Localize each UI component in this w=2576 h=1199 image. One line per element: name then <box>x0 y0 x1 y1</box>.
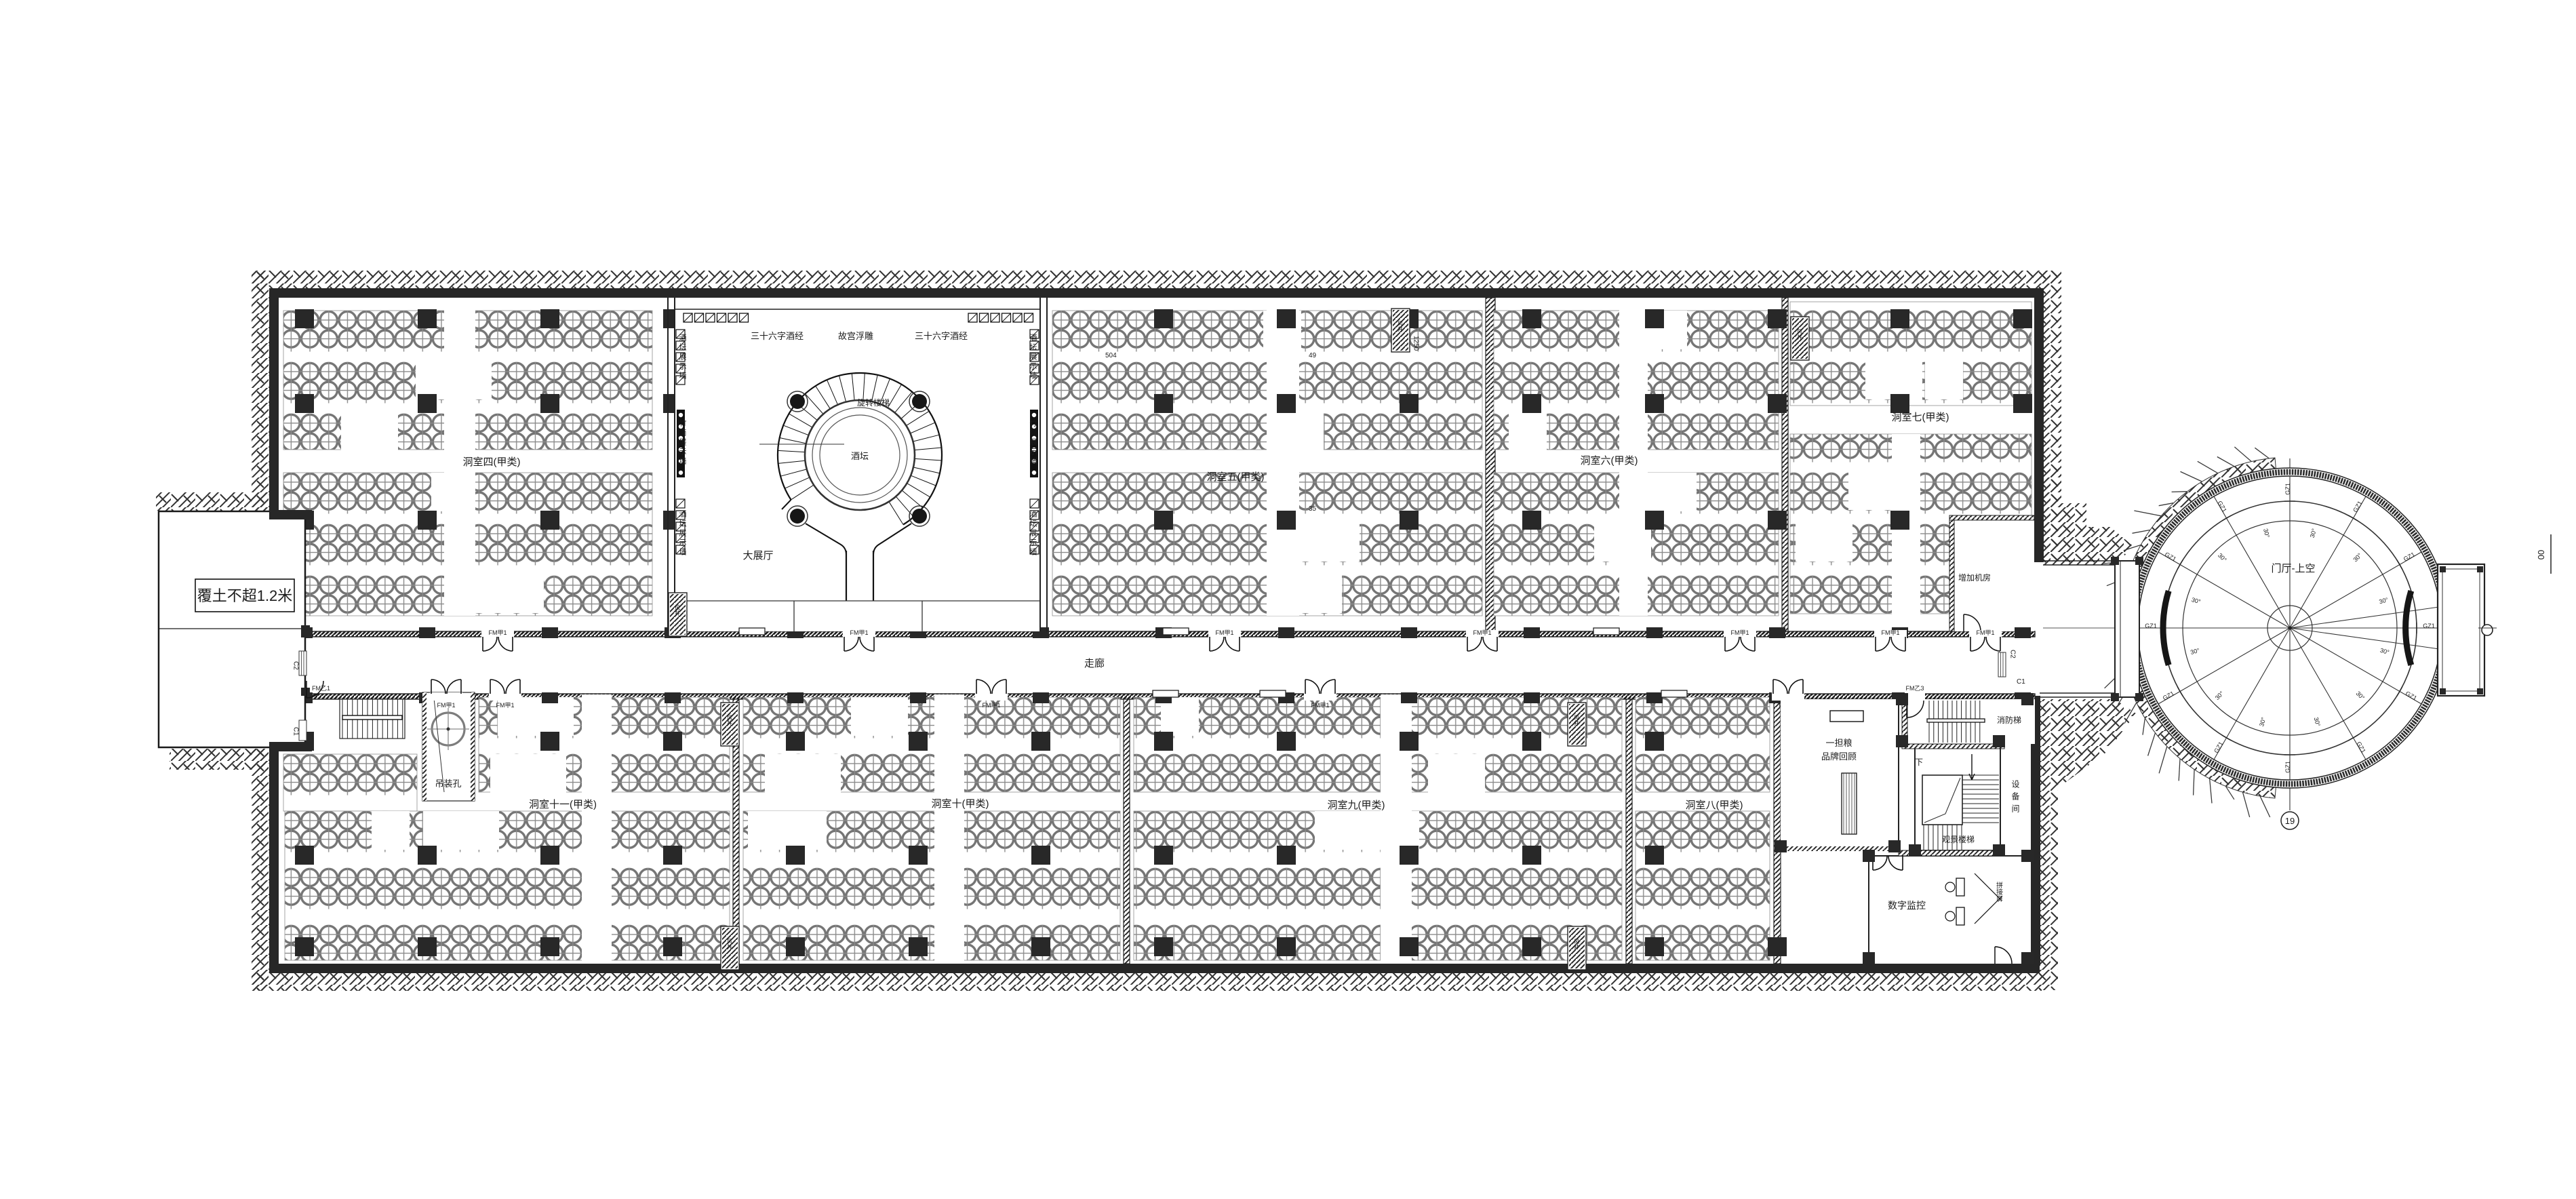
svg-text:门厅-上空: 门厅-上空 <box>2272 563 2316 574</box>
svg-text:FM乙3: FM乙3 <box>1905 685 1924 692</box>
svg-text:洞室十(甲类): 洞室十(甲类) <box>932 798 989 810</box>
svg-text:覆土不超1.2米: 覆土不超1.2米 <box>197 587 293 604</box>
svg-text:吊装孔: 吊装孔 <box>435 779 461 789</box>
svg-text:旋转楼梯: 旋转楼梯 <box>857 397 890 408</box>
svg-text:品牌回顾: 品牌回顾 <box>1821 751 1857 762</box>
svg-text:三十六字酒经: 三十六字酒经 <box>915 331 968 341</box>
svg-text:1250: 1250 <box>1412 336 1420 351</box>
svg-text:酒坛展示墙: 酒坛展示墙 <box>678 510 687 557</box>
svg-text:FM甲1: FM甲1 <box>1215 629 1233 636</box>
svg-text:49: 49 <box>1309 352 1317 359</box>
svg-text:C1: C1 <box>2017 678 2025 686</box>
svg-text:C2: C2 <box>292 661 300 670</box>
svg-text:FM甲1: FM甲1 <box>1881 629 1899 636</box>
svg-text:FM乙1: FM乙1 <box>312 685 330 692</box>
svg-text:FM甲1: FM甲1 <box>496 702 514 709</box>
svg-text:故宫浮雕: 故宫浮雕 <box>838 331 873 341</box>
svg-text:C1: C1 <box>292 727 300 736</box>
svg-text:竹简展示墙: 竹简展示墙 <box>678 418 687 467</box>
svg-text:酒坛展示墙: 酒坛展示墙 <box>1029 510 1037 557</box>
svg-text:数字监控: 数字监控 <box>1888 900 1926 911</box>
svg-text:GZ1: GZ1 <box>2423 623 2435 629</box>
svg-text:消防梯: 消防梯 <box>1997 715 2021 725</box>
svg-text:洞室八(甲类): 洞室八(甲类) <box>1686 800 1743 811</box>
svg-text:三十六字酒经: 三十六字酒经 <box>751 331 804 341</box>
svg-text:洞室六(甲类): 洞室六(甲类) <box>1581 455 1638 467</box>
svg-text:FM甲1: FM甲1 <box>488 629 507 636</box>
svg-text:洞室四(甲类): 洞室四(甲类) <box>463 456 521 468</box>
svg-text:FM甲1: FM甲1 <box>1311 702 1329 709</box>
svg-text:FM甲1: FM甲1 <box>437 702 455 709</box>
svg-text:洞室七(甲类): 洞室七(甲类) <box>1892 412 1949 423</box>
svg-text:FM甲1: FM甲1 <box>1473 629 1491 636</box>
svg-text:酒坛展示墙: 酒坛展示墙 <box>1029 334 1037 381</box>
svg-text:00: 00 <box>2536 550 2546 559</box>
svg-text:风井: 风井 <box>727 715 733 726</box>
svg-text:FM甲1: FM甲1 <box>1730 629 1749 636</box>
svg-text:风井: 风井 <box>675 605 681 616</box>
svg-text:GZ1: GZ1 <box>2145 623 2157 629</box>
svg-text:GZ1: GZ1 <box>2284 483 2291 495</box>
svg-text:GZ1: GZ1 <box>2284 761 2291 773</box>
svg-text:风井: 风井 <box>1574 715 1580 726</box>
svg-text:下: 下 <box>1915 758 1923 767</box>
svg-text:风井: 风井 <box>1398 321 1404 332</box>
svg-text:风井: 风井 <box>1574 939 1580 950</box>
svg-text:增加机房: 增加机房 <box>1958 572 1991 583</box>
svg-text:走廊: 走廊 <box>1084 658 1105 669</box>
svg-text:洞室九(甲类): 洞室九(甲类) <box>1328 800 1385 811</box>
svg-text:酒坛展示墙: 酒坛展示墙 <box>678 334 687 381</box>
svg-text:FM甲1: FM甲1 <box>850 629 868 636</box>
svg-text:19: 19 <box>2285 816 2295 826</box>
svg-text:竹简展示墙: 竹简展示墙 <box>1029 418 1037 467</box>
svg-text:观景楼梯: 观景楼梯 <box>1942 834 1975 844</box>
svg-text:大展厅: 大展厅 <box>742 550 773 562</box>
svg-text:FM甲1: FM甲1 <box>1976 629 1994 636</box>
svg-text:FM甲1: FM甲1 <box>982 702 1000 709</box>
svg-text:35: 35 <box>1309 505 1317 513</box>
svg-text:设备间: 设备间 <box>2010 780 2020 817</box>
svg-text:洞室五(甲类): 洞室五(甲类) <box>1207 471 1265 483</box>
svg-text:风井: 风井 <box>1797 329 1803 340</box>
svg-text:C2: C2 <box>2009 650 2017 659</box>
svg-text:风井: 风井 <box>727 939 733 950</box>
svg-text:504: 504 <box>1105 352 1117 359</box>
svg-text:一担粮: 一担粮 <box>1825 738 1852 748</box>
svg-text:酒坛: 酒坛 <box>851 451 869 461</box>
svg-text:拼接屏: 拼接屏 <box>1995 881 2003 903</box>
svg-text:洞室十一(甲类): 洞室十一(甲类) <box>529 799 597 810</box>
